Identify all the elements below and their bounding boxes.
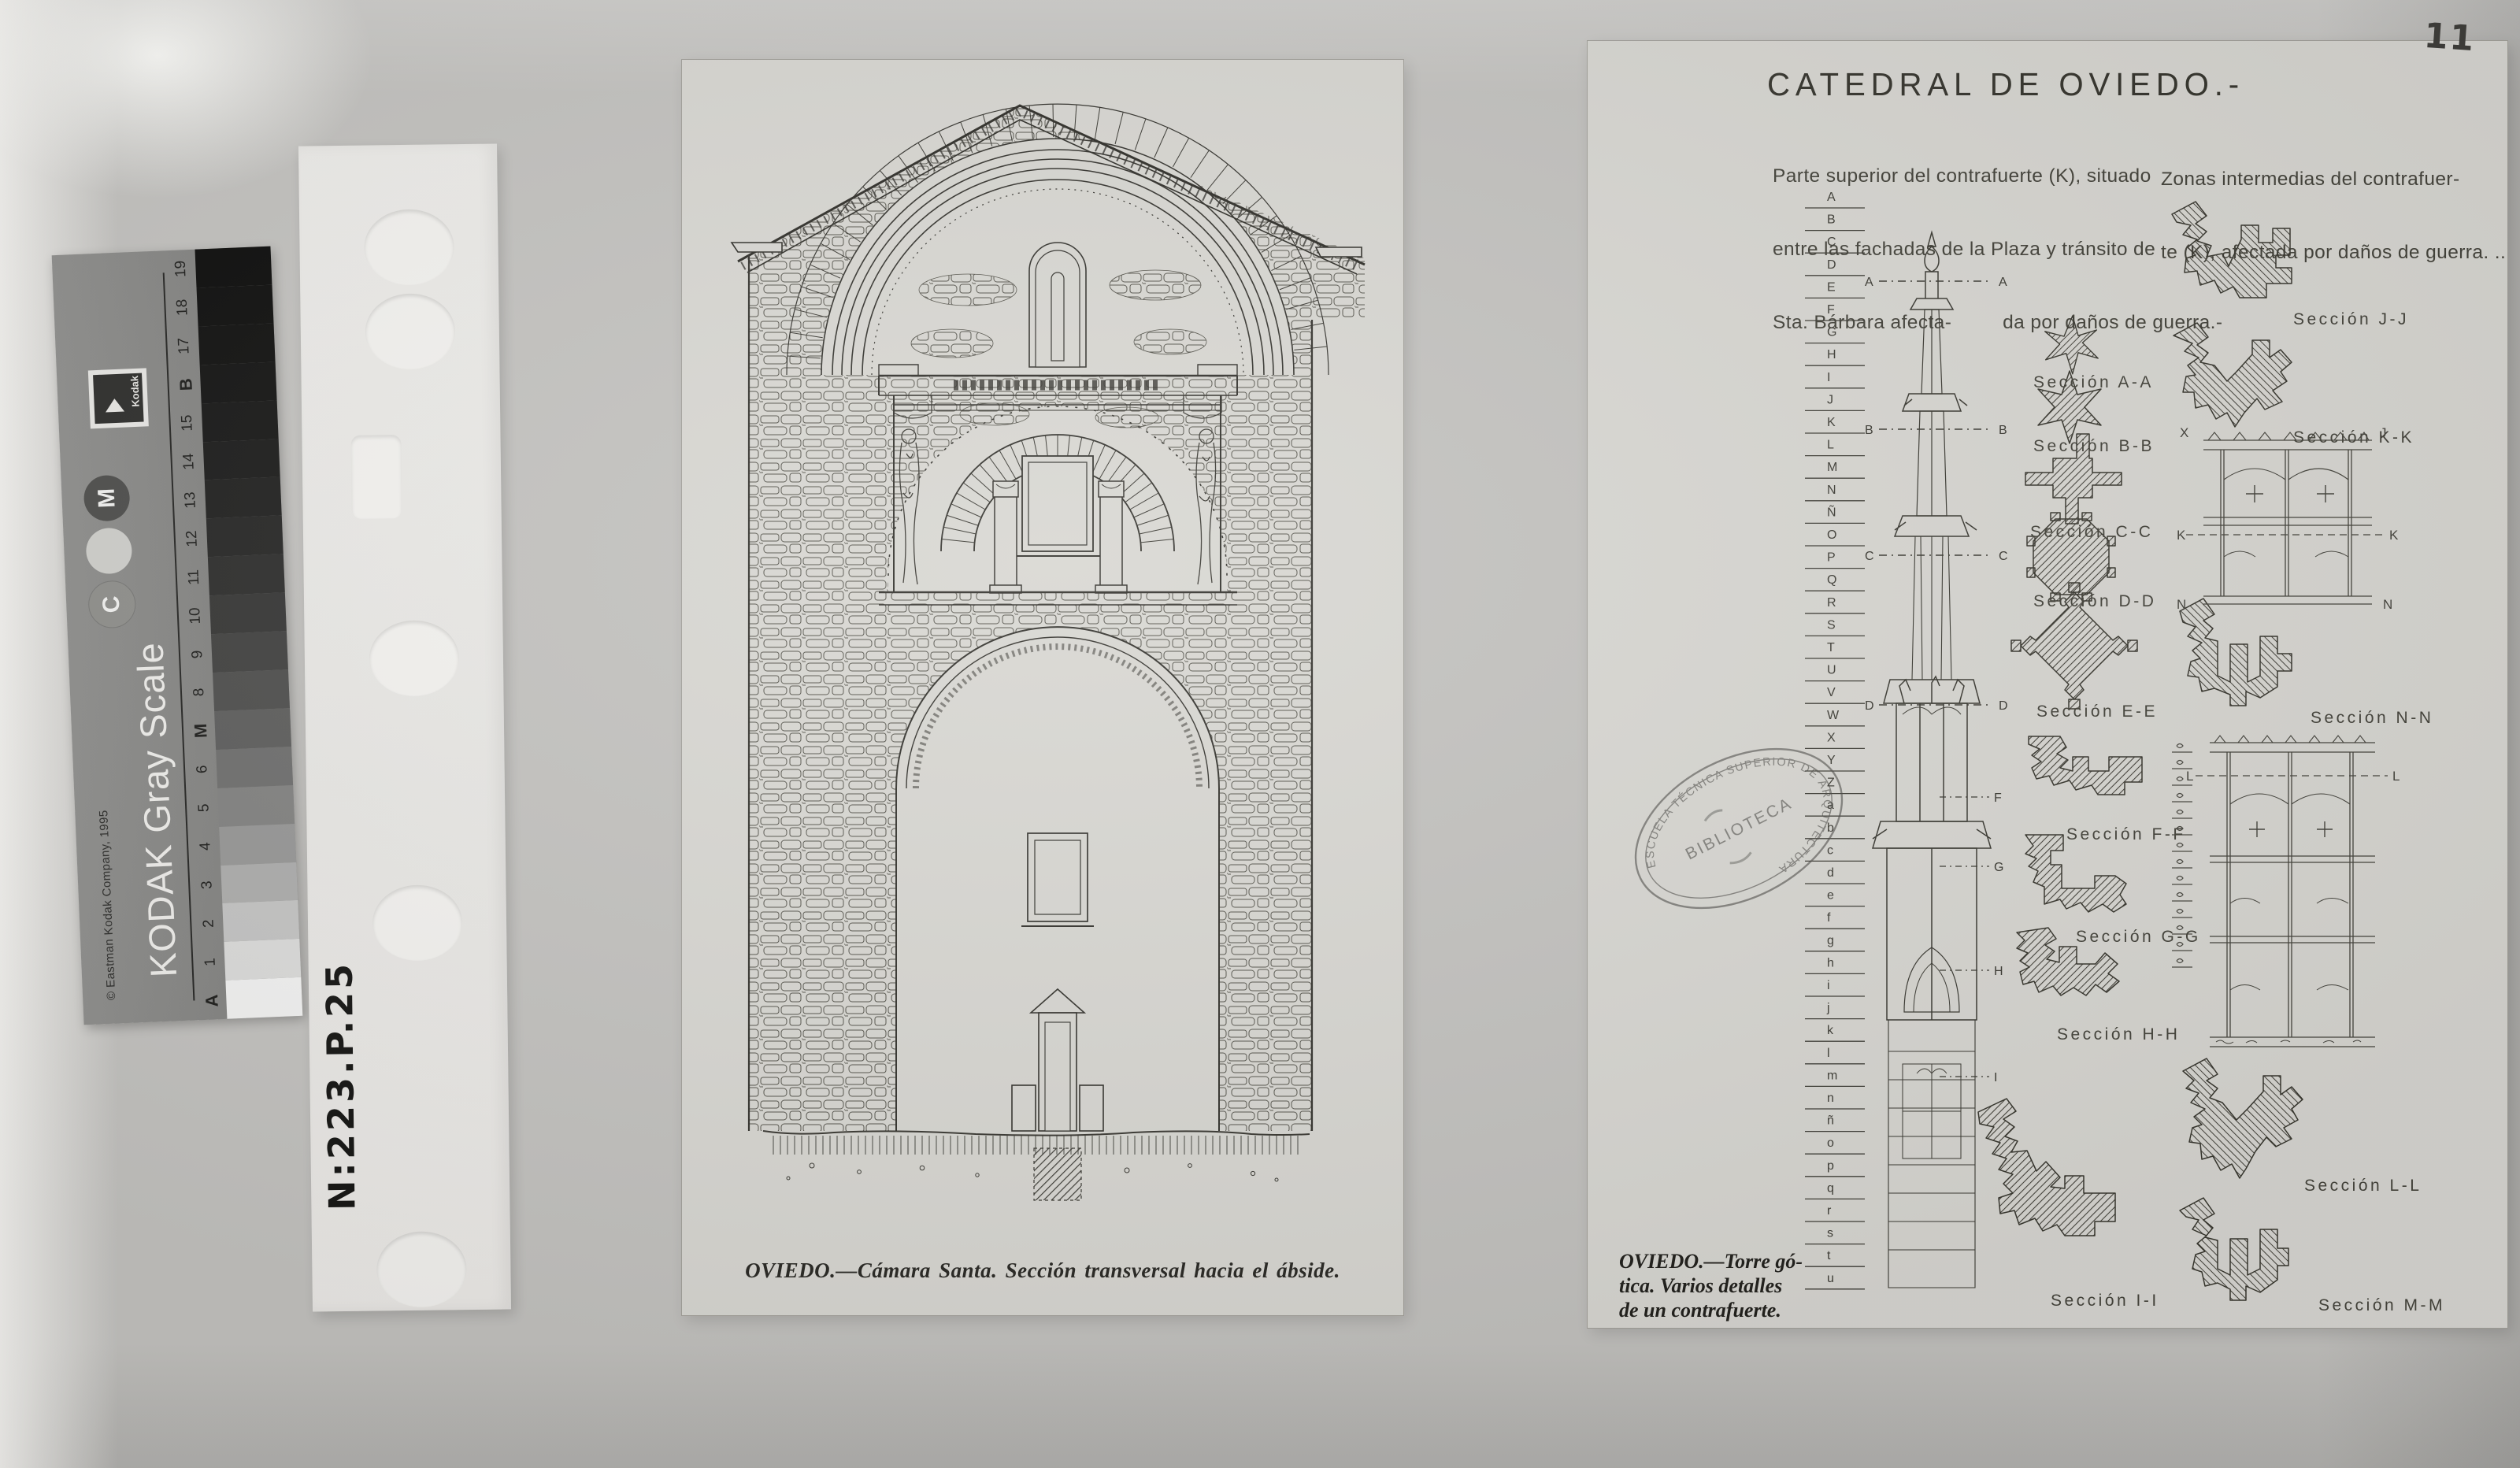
section-label-right-3: Sección L-L bbox=[2304, 1177, 2422, 1196]
punch-slot bbox=[350, 435, 402, 519]
gray-step-label: 11 bbox=[180, 558, 209, 597]
section-plan-ii bbox=[1978, 1099, 2115, 1236]
gray-step-label: 15 bbox=[173, 403, 203, 443]
scale-letter-n: n bbox=[1827, 1092, 1834, 1105]
scale-letter-H: H bbox=[1827, 348, 1836, 361]
section-plan-nn bbox=[2180, 599, 2292, 706]
section-plan-ll bbox=[2183, 1058, 2303, 1178]
scale-letter-Q: Q bbox=[1827, 573, 1836, 587]
section-label-mid-3: Sección D-D bbox=[2033, 592, 2156, 611]
upper-window bbox=[1029, 243, 1086, 367]
buttress-elevation-lower: L L bbox=[2186, 736, 2400, 1047]
gray-step-18 bbox=[197, 284, 274, 326]
scale-letter-B: B bbox=[1827, 213, 1836, 227]
scale-letter-C: C bbox=[1827, 235, 1836, 249]
svg-text:H: H bbox=[1994, 965, 2003, 978]
center-caption: OVIEDO.—Cámara Santa. Sección transversa… bbox=[682, 1259, 1403, 1283]
gray-step-label: 5 bbox=[189, 788, 219, 828]
gray-step-label: 14 bbox=[175, 442, 205, 481]
right-print-catedral-details: CATEDRAL DE OVIEDO.- Parte superior del … bbox=[1588, 41, 2507, 1328]
svg-text:I: I bbox=[1994, 1071, 1997, 1084]
plan-sections-right bbox=[2172, 202, 2303, 1300]
svg-text:L: L bbox=[2392, 769, 2400, 784]
kodak-logo-icon: Kodak bbox=[88, 368, 149, 428]
section-label-mid-6: Sección G-G bbox=[2076, 928, 2201, 947]
scale-letter-P: P bbox=[1827, 551, 1836, 565]
gray-step-12 bbox=[206, 516, 283, 558]
scale-letter-g: g bbox=[1827, 934, 1834, 947]
gray-step-1 bbox=[224, 939, 301, 981]
scale-letter-t: t bbox=[1827, 1249, 1831, 1262]
gray-step-label: 2 bbox=[194, 903, 224, 943]
svg-text:N: N bbox=[2177, 597, 2186, 612]
gray-step-label: 19 bbox=[167, 250, 197, 289]
gray-scale-copyright: © Eastman Kodak Company, 1995 bbox=[95, 772, 118, 1000]
punch-hole bbox=[376, 1231, 467, 1307]
level-letters: FGHI bbox=[1940, 791, 2003, 1084]
scale-letter-d: d bbox=[1827, 866, 1834, 880]
scale-letter-X: X bbox=[1827, 731, 1836, 744]
svg-text:A: A bbox=[1865, 276, 1873, 289]
section-plan-gg bbox=[2025, 835, 2126, 912]
punch-hole bbox=[372, 884, 462, 961]
section-label-mid-0: Sección A-A bbox=[2033, 373, 2154, 392]
scale-letter-M: M bbox=[1827, 461, 1837, 474]
scale-letter-W: W bbox=[1827, 709, 1840, 722]
gray-step-label: 10 bbox=[181, 595, 211, 635]
scale-letter-U: U bbox=[1827, 664, 1836, 677]
svg-text:B: B bbox=[1865, 424, 1873, 437]
section-plan-ff bbox=[2029, 736, 2142, 795]
scale-letter-c: c bbox=[1827, 843, 1833, 857]
center-print-camara-santa: OVIEDO.—Cámara Santa. Sección transversa… bbox=[682, 60, 1403, 1315]
scale-letter-J: J bbox=[1827, 393, 1833, 406]
svg-text:X: X bbox=[2180, 425, 2188, 440]
details-drawing: ABCDEFGHIJKLMNÑOPQRSTUVWXYZabcdefghijklm… bbox=[1588, 41, 2507, 1328]
scale-letter-r: r bbox=[1827, 1204, 1832, 1218]
gray-step-label: 1 bbox=[195, 942, 225, 981]
scale-letter-h: h bbox=[1827, 956, 1834, 969]
section-label-mid-7: Sección H-H bbox=[2057, 1025, 2180, 1044]
gray-step-label: 12 bbox=[178, 519, 208, 558]
crypt-window bbox=[1021, 833, 1094, 926]
scale-letter-F: F bbox=[1827, 303, 1835, 317]
svg-text:K: K bbox=[2389, 528, 2399, 543]
gray-step-10 bbox=[209, 592, 287, 634]
scale-letter-A: A bbox=[1827, 191, 1836, 204]
scale-letter-f: f bbox=[1827, 911, 1831, 925]
punch-hole bbox=[369, 620, 459, 696]
scale-letter-s: s bbox=[1827, 1227, 1833, 1240]
spire-outline bbox=[1873, 232, 1991, 1288]
scale-letter-Ñ: Ñ bbox=[1827, 503, 1836, 519]
archive-photo: Kodak M C KODAK Gray Scale © Eastman Kod… bbox=[0, 0, 2520, 1468]
punch-hole bbox=[364, 209, 454, 285]
gray-step-label: 4 bbox=[191, 827, 220, 866]
scale-letter-ñ: ñ bbox=[1827, 1114, 1834, 1128]
scale-letter-S: S bbox=[1827, 618, 1836, 632]
gray-step-17 bbox=[198, 323, 276, 365]
scale-letter-E: E bbox=[1827, 280, 1836, 294]
section-plan-kk bbox=[2173, 323, 2292, 427]
section-label-right-1: Sección K-K bbox=[2293, 428, 2414, 447]
gray-step-A bbox=[225, 977, 302, 1019]
scale-letter-I: I bbox=[1827, 371, 1830, 384]
section-label-mid-4: Sección E-E bbox=[2036, 702, 2158, 721]
middle-window bbox=[1015, 456, 1100, 556]
handwritten-catalog-number: N:223.P.25 bbox=[318, 958, 364, 1211]
scale-letter-e: e bbox=[1827, 889, 1834, 903]
scale-letter-T: T bbox=[1827, 641, 1835, 654]
scale-letter-q: q bbox=[1827, 1181, 1834, 1195]
gray-step-label: 6 bbox=[187, 750, 217, 789]
gray-step-label: M bbox=[186, 711, 216, 751]
punched-paper-strip: N:223.P.25 bbox=[298, 144, 511, 1312]
section-label-right-4: Sección M-M bbox=[2318, 1296, 2445, 1315]
svg-text:G: G bbox=[1994, 861, 2003, 874]
right-caption: OVIEDO.—Torre gó- tica. Varios detalles … bbox=[1619, 1249, 1803, 1322]
gray-step-label: 8 bbox=[184, 673, 214, 712]
scale-letter-G: G bbox=[1827, 326, 1836, 339]
section-cut-lines: AABBCCDD bbox=[1865, 276, 2008, 713]
gray-step-label: B bbox=[172, 365, 202, 404]
gray-step-14 bbox=[203, 439, 280, 480]
gray-step-label: 18 bbox=[169, 287, 198, 327]
tower-spire-drawing: ABCDEFGHIJKLMNÑOPQRSTUVWXYZabcdefghijklm… bbox=[1805, 191, 2008, 1289]
gray-step-2 bbox=[222, 900, 299, 942]
scale-letter-D: D bbox=[1827, 258, 1836, 272]
scale-letter-u: u bbox=[1827, 1272, 1834, 1285]
section-label-right-0: Sección J-J bbox=[2293, 310, 2409, 329]
scale-letter-N: N bbox=[1827, 484, 1836, 497]
section-label-mid-5: Sección F-F bbox=[2066, 825, 2186, 844]
gray-step-label: 9 bbox=[183, 634, 213, 673]
page-number: 11 bbox=[2422, 16, 2477, 59]
scale-letter-p: p bbox=[1827, 1159, 1834, 1173]
scale-letter-Y: Y bbox=[1827, 754, 1836, 767]
kodak-logo-word: Kodak bbox=[128, 376, 142, 407]
gray-step-11 bbox=[208, 554, 285, 596]
svg-text:C: C bbox=[1865, 550, 1874, 563]
section-label-mid-8: Sección I-I bbox=[2051, 1292, 2159, 1310]
section-label-right-2: Sección N-N bbox=[2311, 709, 2433, 728]
svg-text:L: L bbox=[2186, 769, 2193, 784]
section-plan-jj bbox=[2172, 202, 2292, 298]
scale-letter-L: L bbox=[1827, 439, 1834, 452]
section-label-mid-1: Sección B-B bbox=[2033, 437, 2155, 456]
kodak-gray-scale-card: Kodak M C KODAK Gray Scale © Eastman Kod… bbox=[52, 247, 303, 1025]
tower-level-scale: ABCDEFGHIJKLMNÑOPQRSTUVWXYZabcdefghijklm… bbox=[1805, 191, 1865, 1289]
gray-step-3 bbox=[220, 862, 298, 903]
gray-step-label: A bbox=[197, 981, 227, 1020]
svg-text:BIBLIOTECA: BIBLIOTECA bbox=[1683, 794, 1795, 863]
svg-text:D: D bbox=[1865, 699, 1874, 713]
scale-letter-O: O bbox=[1827, 528, 1836, 542]
buttress-elevation-upper: X J K K N N bbox=[2177, 425, 2399, 612]
scale-letter-K: K bbox=[1827, 416, 1836, 429]
gray-step-19 bbox=[195, 247, 272, 288]
svg-text:C: C bbox=[1999, 550, 2008, 563]
svg-text:B: B bbox=[1999, 424, 2007, 437]
scale-letter-V: V bbox=[1827, 686, 1836, 699]
scale-letter-R: R bbox=[1827, 596, 1836, 610]
section-plan-aa bbox=[2045, 316, 2099, 374]
gray-step-9 bbox=[211, 631, 288, 673]
scale-letter-m: m bbox=[1827, 1069, 1837, 1082]
gray-step-label: 3 bbox=[192, 865, 222, 904]
scale-letter-i: i bbox=[1827, 979, 1830, 992]
section-label-mid-2: Sección C-C bbox=[2030, 523, 2153, 542]
scale-letter-o: o bbox=[1827, 1136, 1834, 1150]
gray-step-8 bbox=[213, 669, 290, 711]
ground bbox=[763, 1131, 1310, 1200]
gray-step-label: 17 bbox=[170, 326, 200, 365]
gray-step-5 bbox=[217, 785, 295, 827]
svg-text:D: D bbox=[1999, 699, 2008, 713]
gray-step-B bbox=[200, 361, 277, 403]
scale-letter-j: j bbox=[1826, 1002, 1830, 1015]
section-plan-mm bbox=[2180, 1198, 2288, 1300]
gray-step-6 bbox=[216, 747, 293, 788]
punch-hole bbox=[365, 293, 455, 369]
gray-step-label: 13 bbox=[176, 480, 206, 520]
camara-santa-section-drawing bbox=[717, 83, 1367, 1241]
svg-text:N: N bbox=[2383, 597, 2392, 612]
svg-text:A: A bbox=[1999, 276, 2007, 289]
scale-letter-l: l bbox=[1827, 1047, 1830, 1060]
gray-step-4 bbox=[219, 824, 296, 866]
gray-step-15 bbox=[202, 400, 279, 442]
gray-step-13 bbox=[205, 477, 282, 519]
svg-text:F: F bbox=[1994, 791, 2002, 805]
scale-letter-k: k bbox=[1827, 1024, 1834, 1037]
gray-step-M bbox=[214, 708, 291, 750]
svg-text:K: K bbox=[2177, 528, 2186, 543]
